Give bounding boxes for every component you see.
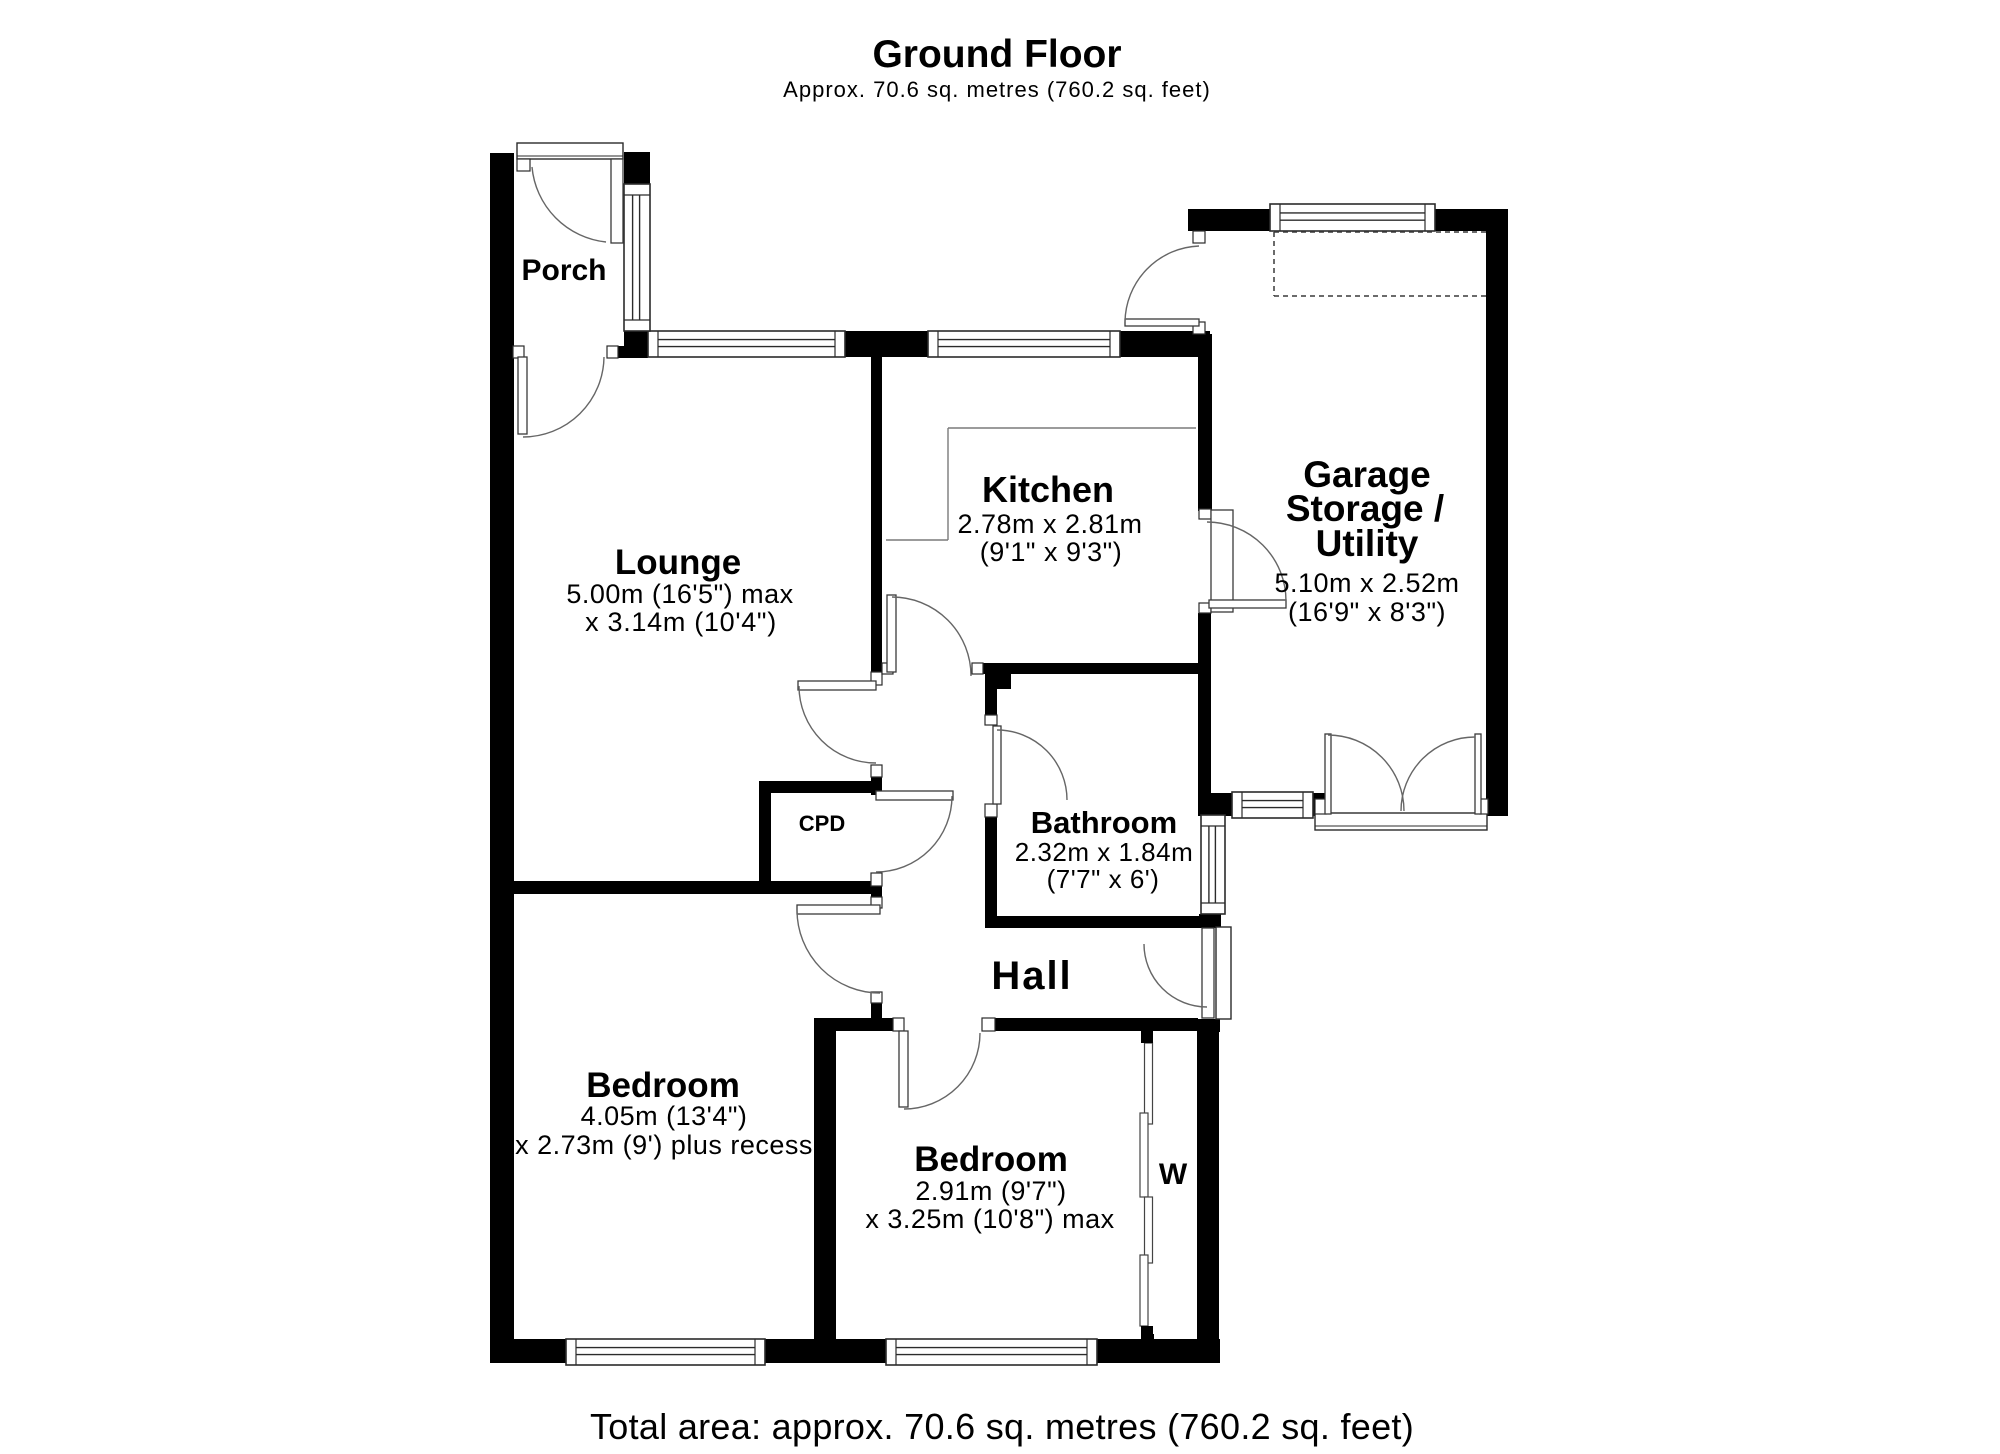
svg-text:Hall: Hall [991, 954, 1072, 998]
svg-text:CPD: CPD [799, 811, 845, 836]
svg-text:Bedroom: Bedroom [914, 1140, 1068, 1179]
svg-text:Porch: Porch [521, 254, 606, 287]
svg-text:Total area: approx. 70.6 sq. m: Total area: approx. 70.6 sq. metres (760… [590, 1406, 1414, 1447]
svg-text:Bedroom: Bedroom [586, 1066, 740, 1105]
svg-text:(16'9" x 8'3"): (16'9" x 8'3") [1288, 597, 1446, 627]
svg-text:x 3.14m (10'4"): x 3.14m (10'4") [585, 607, 777, 637]
svg-text:2.32m x 1.84m: 2.32m x 1.84m [1015, 837, 1193, 867]
svg-text:x 2.73m (9') plus recess: x 2.73m (9') plus recess [515, 1130, 813, 1160]
svg-text:5.00m (16'5") max: 5.00m (16'5") max [566, 579, 793, 609]
svg-text:Bathroom: Bathroom [1031, 805, 1177, 840]
svg-text:x 3.25m (10'8") max: x 3.25m (10'8") max [865, 1204, 1114, 1234]
svg-text:W: W [1159, 1158, 1188, 1191]
svg-text:Approx. 70.6 sq. metres (760.2: Approx. 70.6 sq. metres (760.2 sq. feet) [783, 77, 1211, 102]
svg-text:Kitchen: Kitchen [982, 469, 1114, 510]
svg-text:2.91m (9'7"): 2.91m (9'7") [915, 1176, 1066, 1206]
svg-text:Lounge: Lounge [615, 543, 741, 582]
svg-text:4.05m (13'4"): 4.05m (13'4") [581, 1101, 748, 1131]
svg-text:Utility: Utility [1316, 523, 1419, 564]
svg-text:Ground Floor: Ground Floor [872, 33, 1121, 76]
svg-text:5.10m x 2.52m: 5.10m x 2.52m [1274, 568, 1459, 598]
svg-text:(9'1" x 9'3"): (9'1" x 9'3") [980, 537, 1123, 567]
svg-text:(7'7" x 6'): (7'7" x 6') [1047, 864, 1160, 894]
svg-text:2.78m x 2.81m: 2.78m x 2.81m [957, 509, 1142, 539]
